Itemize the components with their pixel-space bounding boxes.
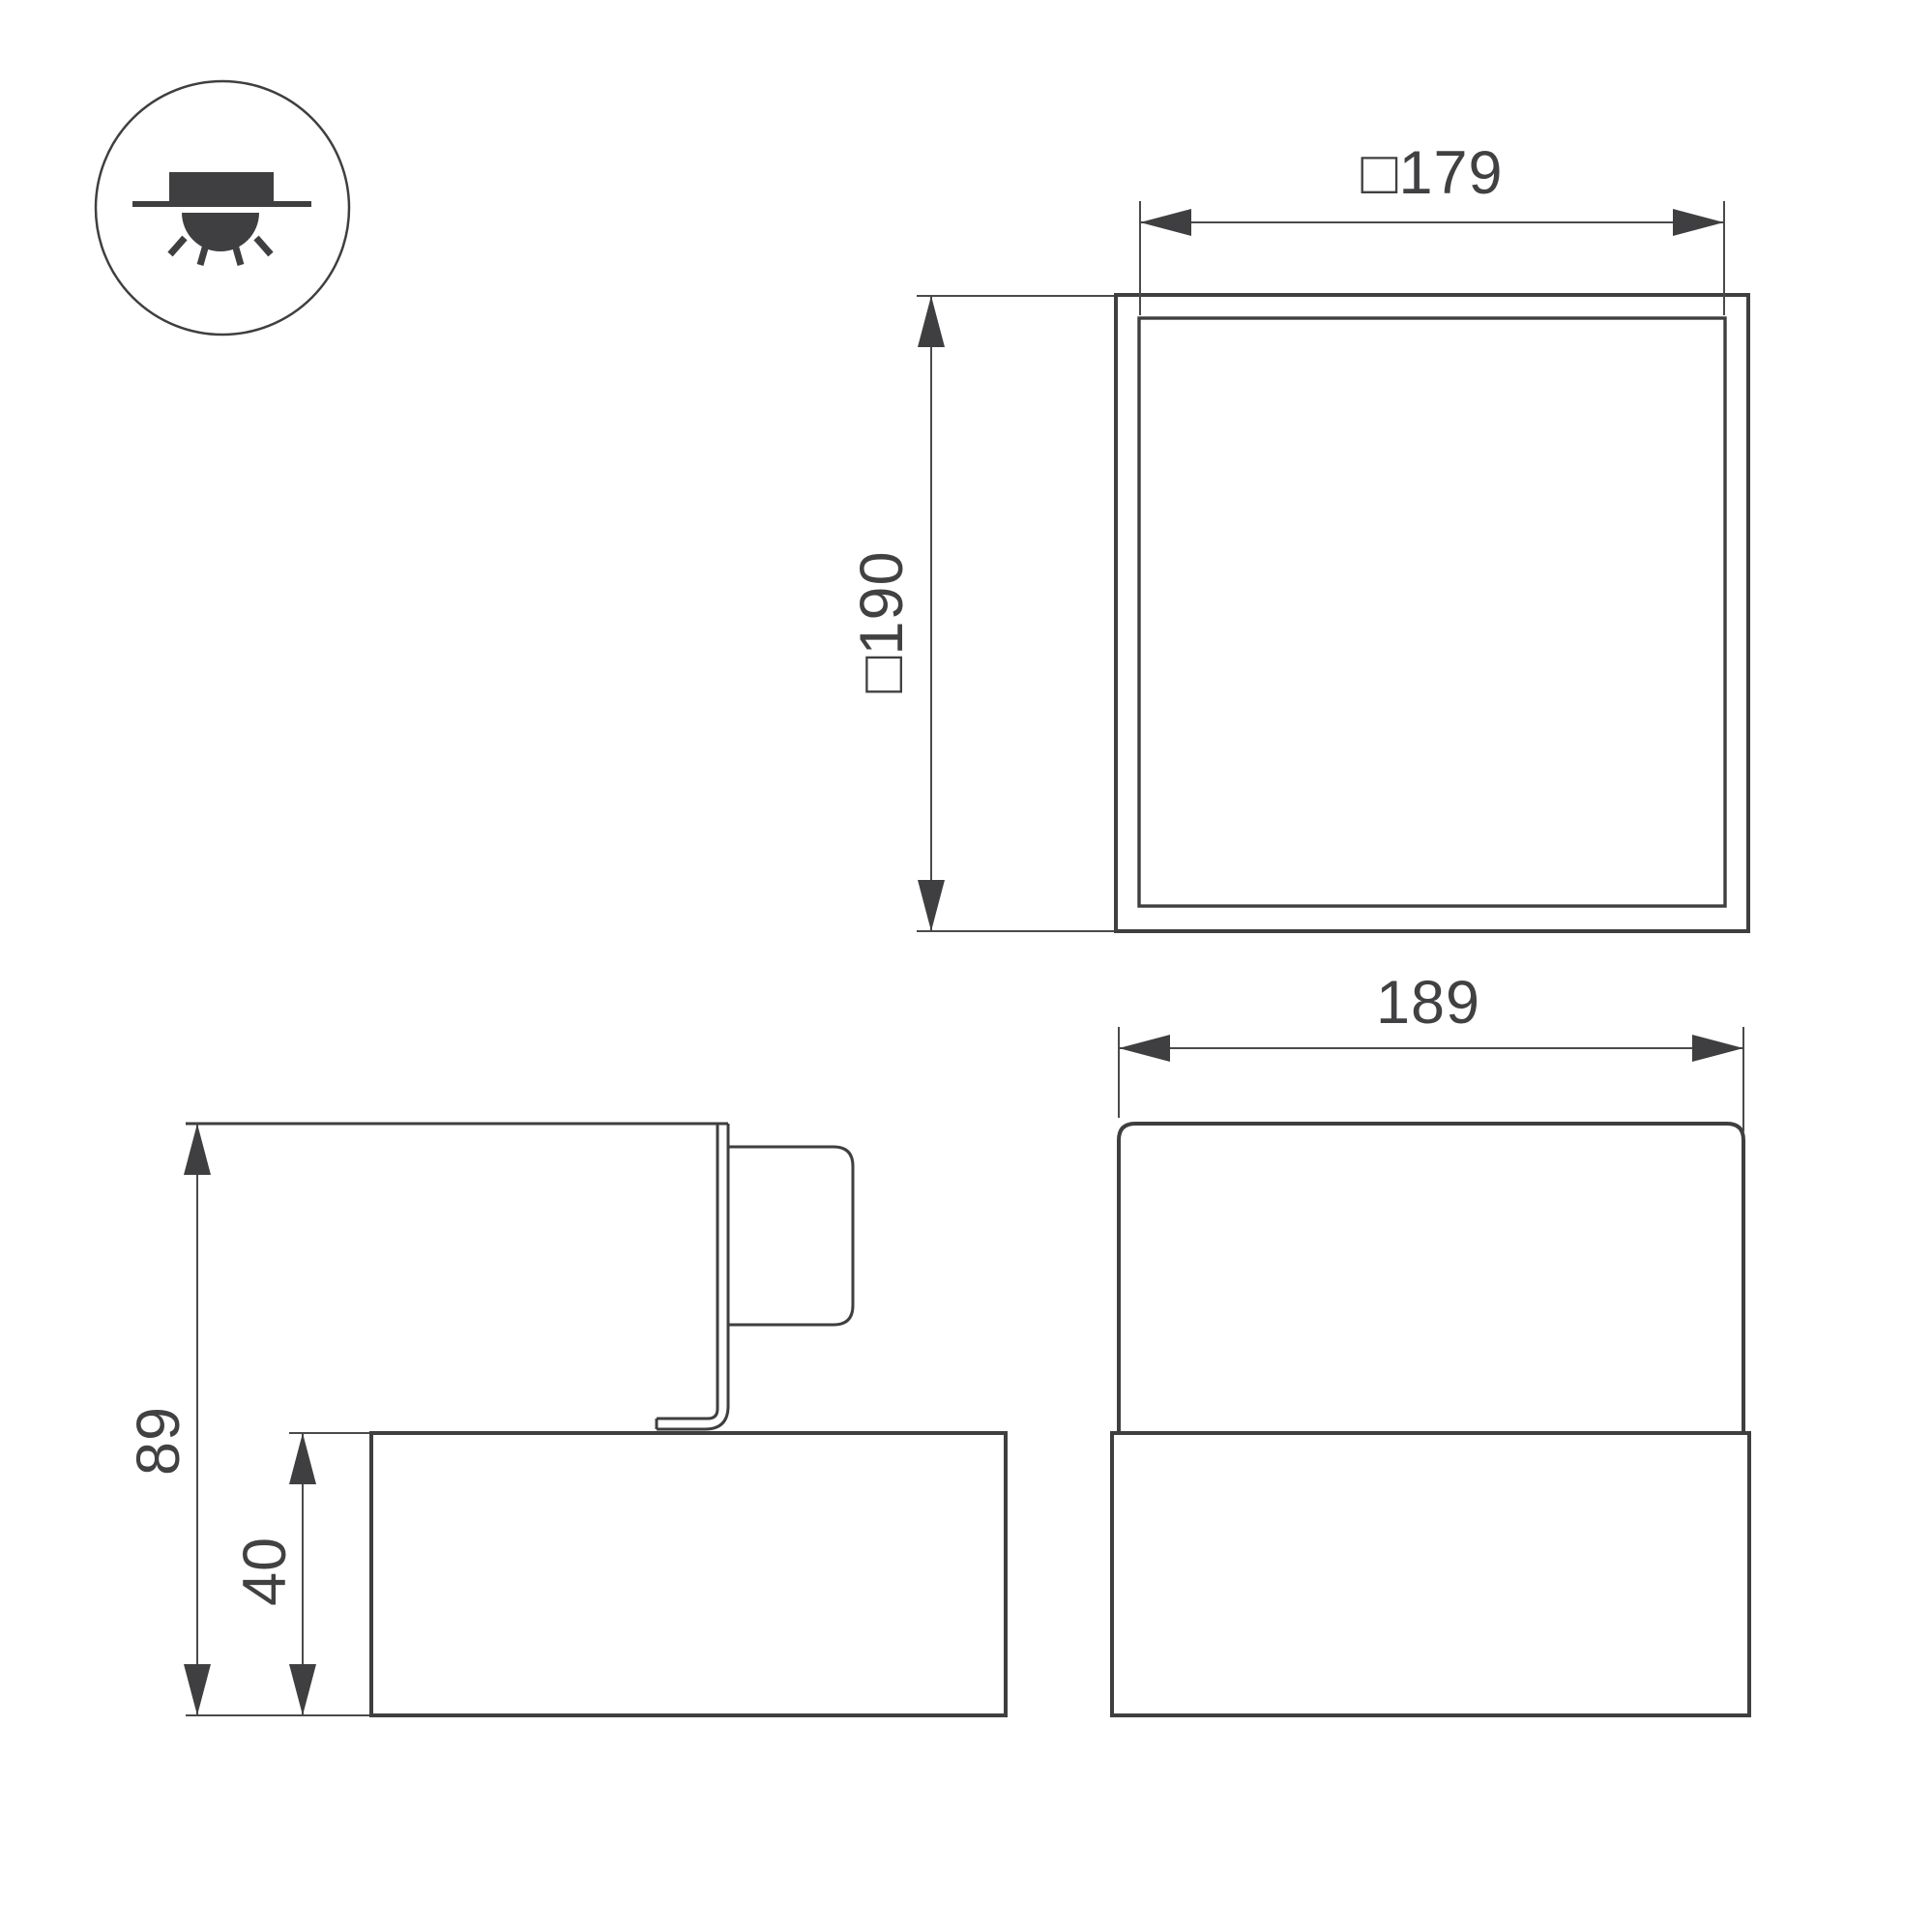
dim-label-front-width: 189 [1376, 969, 1480, 1037]
front-view [1112, 1124, 1749, 1715]
dim-label-top-width: □179 [1361, 139, 1503, 207]
arrow-right-icon [1692, 1035, 1743, 1062]
side-view [186, 1124, 1006, 1715]
dimension-body-height: 40 [231, 1433, 369, 1715]
icon-light-ray [170, 238, 185, 254]
arrow-up-icon [918, 296, 945, 347]
front-view-lower-trim [1112, 1433, 1749, 1715]
dimension-front-width: 189 [1119, 969, 1743, 1131]
top-view [1116, 295, 1748, 931]
dimension-total-height: 89 [125, 1124, 369, 1715]
arrow-down-icon [918, 880, 945, 931]
arrow-down-icon [289, 1664, 316, 1715]
dim-label-total-height: 89 [125, 1406, 192, 1476]
dimension-top-height: □190 [848, 296, 1114, 931]
arrow-up-icon [184, 1124, 211, 1175]
side-view-driver-box [728, 1147, 853, 1325]
icon-lamp-dome [182, 213, 259, 251]
arrow-left-icon [1119, 1035, 1170, 1062]
arrow-left-icon [1140, 209, 1191, 236]
arrow-right-icon [1673, 209, 1724, 236]
front-view-upper-body [1119, 1124, 1743, 1433]
icon-circle [96, 81, 349, 335]
side-view-mounting-bracket [657, 1124, 717, 1419]
dim-label-top-height: □190 [848, 550, 916, 692]
dimension-top-width: □179 [1140, 139, 1724, 315]
dim-label-body-height: 40 [231, 1537, 299, 1606]
top-view-inner-square [1139, 318, 1725, 906]
arrow-down-icon [184, 1664, 211, 1715]
icon-housing [169, 172, 274, 204]
icon-light-ray [256, 238, 271, 254]
icon-ceiling-line [132, 201, 311, 207]
recessed-ceiling-light-icon [96, 81, 349, 335]
icon-light-ray [235, 245, 241, 265]
arrow-up-icon [289, 1433, 316, 1484]
top-view-outer-square [1116, 295, 1748, 931]
icon-light-ray [200, 245, 206, 265]
side-view-body [371, 1433, 1006, 1715]
dimension-drawing: □179 □190 89 [0, 0, 1932, 1932]
